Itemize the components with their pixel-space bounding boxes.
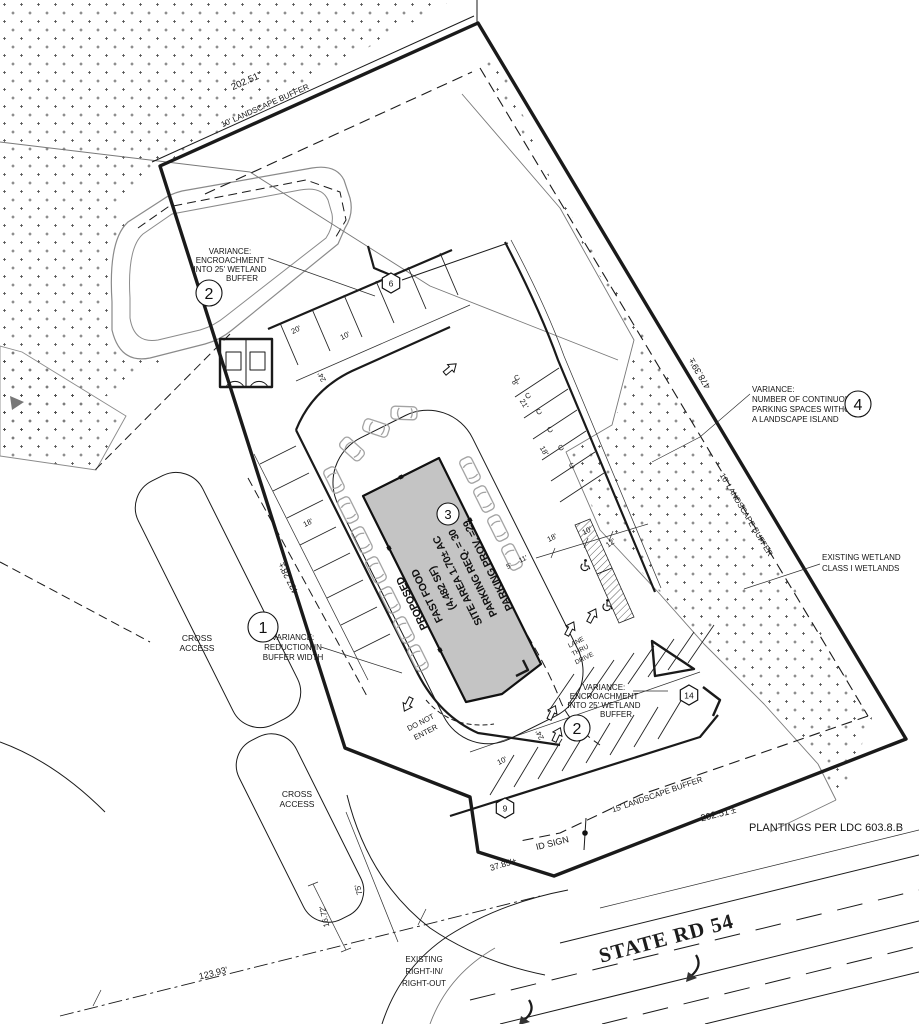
building-keynote-number: 3 bbox=[444, 507, 451, 522]
svg-text:6: 6 bbox=[389, 279, 394, 289]
svg-text:VARIANCE:: VARIANCE: bbox=[272, 633, 315, 642]
svg-text:ACCESS: ACCESS bbox=[180, 643, 215, 653]
svg-text:A LANDSCAPE ISLAND: A LANDSCAPE ISLAND bbox=[752, 415, 839, 424]
svg-text:NUMBER OF CONTINUOUS: NUMBER OF CONTINUOUS bbox=[752, 395, 856, 404]
svg-text:BUFFER: BUFFER bbox=[600, 710, 632, 719]
svg-text:14: 14 bbox=[684, 691, 694, 701]
svg-text:RIGHT-IN/: RIGHT-IN/ bbox=[405, 967, 443, 976]
svg-text:EXISTING WETLAND: EXISTING WETLAND bbox=[822, 553, 901, 562]
cross-access-label-1: CROSS ACCESS bbox=[180, 633, 215, 653]
svg-text:ENCROACHMENT: ENCROACHMENT bbox=[196, 256, 265, 265]
svg-text:INTO 25' WETLAND: INTO 25' WETLAND bbox=[194, 265, 267, 274]
svg-text:RIGHT-OUT: RIGHT-OUT bbox=[402, 979, 446, 988]
svg-text:2: 2 bbox=[205, 286, 214, 303]
svg-text:CROSS: CROSS bbox=[182, 633, 213, 643]
svg-text:CROSS: CROSS bbox=[282, 789, 313, 799]
svg-text:1: 1 bbox=[259, 620, 268, 637]
svg-text:VARIANCE:: VARIANCE: bbox=[209, 247, 252, 256]
site-plan-sheet: 202.51' 10' LANDSCAPE BUFFER 437.28'± 47… bbox=[0, 0, 919, 1024]
svg-text:4: 4 bbox=[854, 397, 863, 414]
svg-text:ACCESS: ACCESS bbox=[280, 799, 315, 809]
existing-access-note: EXISTING RIGHT-IN/ RIGHT-OUT bbox=[402, 955, 446, 988]
svg-text:2: 2 bbox=[573, 721, 582, 738]
svg-text:CLASS I WETLANDS: CLASS I WETLANDS bbox=[822, 564, 899, 573]
svg-text:INTO 25' WETLAND: INTO 25' WETLAND bbox=[568, 701, 641, 710]
cross-access-label-2: CROSS ACCESS bbox=[280, 789, 315, 809]
svg-text:VARIANCE:: VARIANCE: bbox=[752, 385, 795, 394]
svg-text:BUFFER WIDTH: BUFFER WIDTH bbox=[263, 653, 324, 662]
svg-text:BUFFER: BUFFER bbox=[226, 274, 258, 283]
site-plan-drawing: 202.51' 10' LANDSCAPE BUFFER 437.28'± 47… bbox=[0, 0, 919, 1024]
svg-text:REDUCTION IN: REDUCTION IN bbox=[264, 643, 322, 652]
svg-text:9: 9 bbox=[503, 804, 508, 814]
plantings-note: PLANTINGS PER LDC 603.8.B bbox=[749, 822, 903, 834]
svg-text:EXISTING: EXISTING bbox=[405, 955, 442, 964]
svg-text:VARIANCE:: VARIANCE: bbox=[583, 683, 626, 692]
svg-text:ENCROACHMENT: ENCROACHMENT bbox=[570, 692, 639, 701]
